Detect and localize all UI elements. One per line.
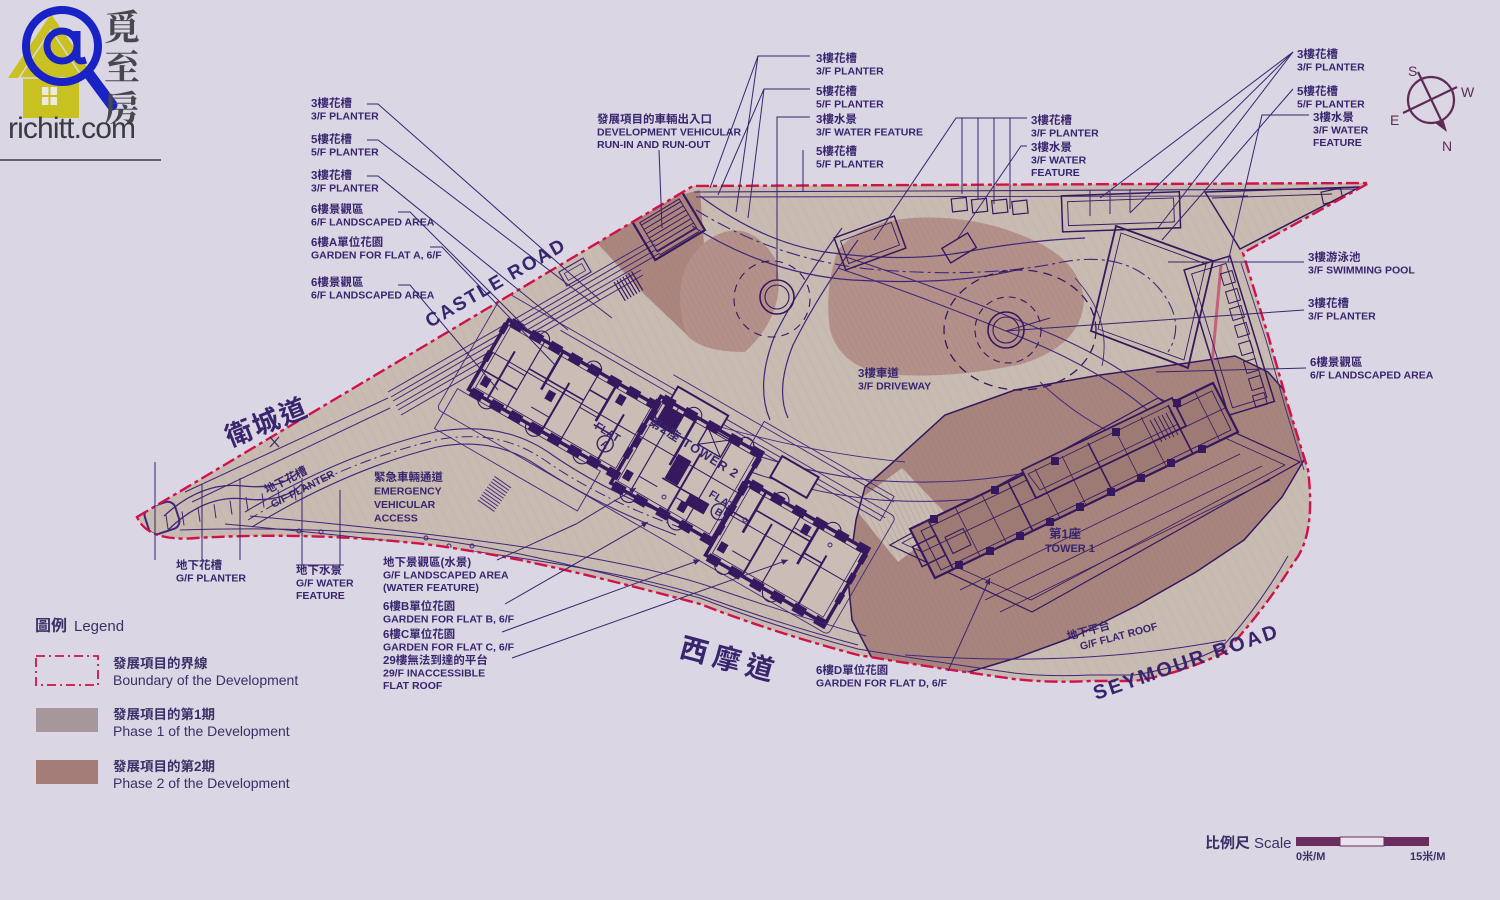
svg-text:Legend: Legend xyxy=(74,618,124,635)
svg-text:3/F WATER: 3/F WATER xyxy=(1031,155,1087,167)
svg-text:3/F PLANTER: 3/F PLANTER xyxy=(816,66,884,78)
svg-text:5/F PLANTER: 5/F PLANTER xyxy=(816,99,884,111)
svg-text:E: E xyxy=(1390,112,1399,128)
svg-text:5/F PLANTER: 5/F PLANTER xyxy=(311,147,379,159)
svg-text:FEATURE: FEATURE xyxy=(296,590,345,602)
svg-text:Phase 2 of the Development: Phase 2 of the Development xyxy=(113,775,290,791)
svg-text:6/F LANDSCAPED AREA: 6/F LANDSCAPED AREA xyxy=(311,290,435,302)
svg-text:5/F PLANTER: 5/F PLANTER xyxy=(1297,99,1365,111)
svg-text:TOWER 1: TOWER 1 xyxy=(1045,543,1095,555)
svg-text:3/F PLANTER: 3/F PLANTER xyxy=(1297,62,1365,74)
svg-text:3/F PLANTER: 3/F PLANTER xyxy=(311,183,379,195)
svg-text:DEVELOPMENT VEHICULAR: DEVELOPMENT VEHICULAR xyxy=(597,127,742,139)
svg-text:3/F DRIVEWAY: 3/F DRIVEWAY xyxy=(858,381,931,393)
svg-text:EMERGENCY: EMERGENCY xyxy=(374,486,442,498)
svg-text:N: N xyxy=(1442,138,1452,154)
svg-text:Scale: Scale xyxy=(1254,835,1292,852)
svg-text:6/F LANDSCAPED AREA: 6/F LANDSCAPED AREA xyxy=(1310,370,1434,382)
svg-text:VEHICULAR: VEHICULAR xyxy=(374,499,436,511)
svg-text:6/F LANDSCAPED AREA: 6/F LANDSCAPED AREA xyxy=(311,217,435,229)
svg-text:GARDEN FOR FLAT C, 6/F: GARDEN FOR FLAT C, 6/F xyxy=(383,642,515,654)
svg-text:G/F LANDSCAPED AREA: G/F LANDSCAPED AREA xyxy=(383,570,509,582)
svg-text:G/F PLANTER: G/F PLANTER xyxy=(176,573,246,585)
svg-text:5/F PLANTER: 5/F PLANTER xyxy=(816,159,884,171)
svg-text:3/F SWIMMING POOL: 3/F SWIMMING POOL xyxy=(1308,265,1415,277)
svg-text:richitt.com: richitt.com xyxy=(8,112,136,145)
svg-text:W: W xyxy=(1461,84,1475,100)
svg-text:3/F PLANTER: 3/F PLANTER xyxy=(1308,311,1376,323)
svg-text:FEATURE: FEATURE xyxy=(1313,137,1362,149)
svg-text:(WATER FEATURE): (WATER FEATURE) xyxy=(383,582,479,594)
svg-text:29/F INACCESSIBLE: 29/F INACCESSIBLE xyxy=(383,668,485,680)
svg-text:FEATURE: FEATURE xyxy=(1031,167,1080,179)
svg-text:3/F WATER: 3/F WATER xyxy=(1313,125,1369,137)
svg-text:S: S xyxy=(1408,63,1417,79)
svg-text:GARDEN FOR FLAT D, 6/F: GARDEN FOR FLAT D, 6/F xyxy=(816,678,948,690)
svg-text:RUN-IN AND RUN-OUT: RUN-IN AND RUN-OUT xyxy=(597,139,711,151)
svg-text:FLAT ROOF: FLAT ROOF xyxy=(383,680,443,692)
svg-text:Phase 1 of the Development: Phase 1 of the Development xyxy=(113,723,290,739)
svg-text:3/F PLANTER: 3/F PLANTER xyxy=(1031,128,1099,140)
svg-text:Boundary of the Development: Boundary of the Development xyxy=(113,672,298,688)
svg-text:ACCESS: ACCESS xyxy=(374,513,418,525)
svg-text:3/F PLANTER: 3/F PLANTER xyxy=(311,111,379,123)
svg-text:GARDEN FOR FLAT A, 6/F: GARDEN FOR FLAT A, 6/F xyxy=(311,250,442,262)
svg-text:G/F WATER: G/F WATER xyxy=(296,578,354,590)
svg-text:GARDEN FOR FLAT B, 6/F: GARDEN FOR FLAT B, 6/F xyxy=(383,614,515,626)
svg-text:3/F WATER FEATURE: 3/F WATER FEATURE xyxy=(816,127,923,139)
